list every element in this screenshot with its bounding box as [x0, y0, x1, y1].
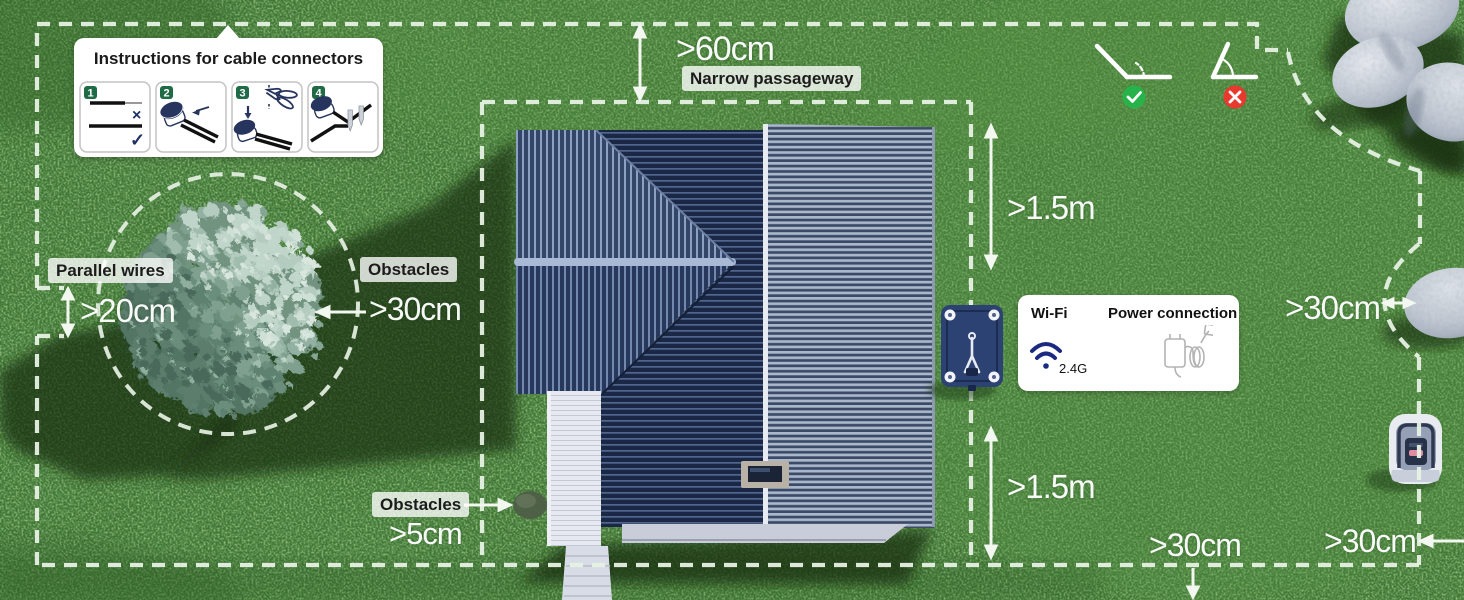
svg-text:3: 3 [239, 88, 245, 100]
svg-text:2: 2 [163, 88, 169, 100]
svg-text:✓: ✓ [130, 130, 145, 150]
svg-text:×: × [132, 107, 141, 124]
svg-text:1: 1 [87, 88, 93, 100]
